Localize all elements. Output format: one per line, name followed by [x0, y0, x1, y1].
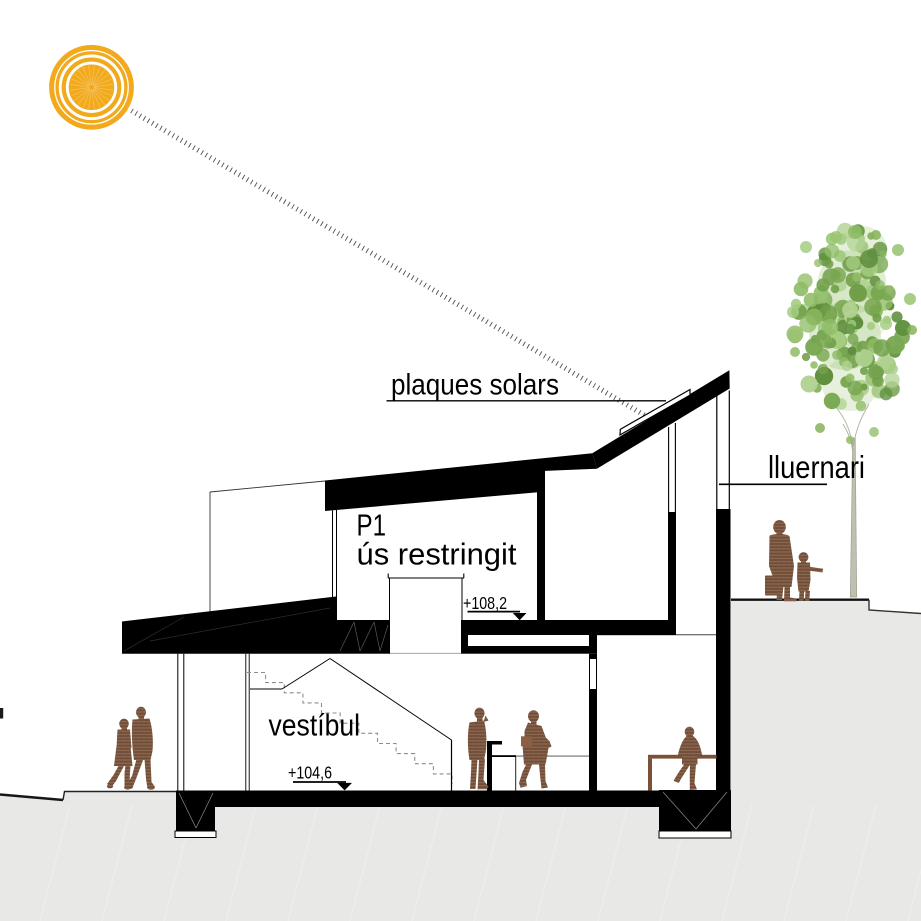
svg-text:+104,6: +104,6 — [288, 762, 332, 782]
svg-text:lluernari: lluernari — [768, 449, 865, 485]
svg-text:vestíbul: vestíbul — [269, 707, 361, 742]
svg-text:plaques solars: plaques solars — [391, 369, 559, 402]
svg-text:+108,2: +108,2 — [463, 593, 507, 613]
svg-text:ús restringit: ús restringit — [357, 537, 517, 572]
